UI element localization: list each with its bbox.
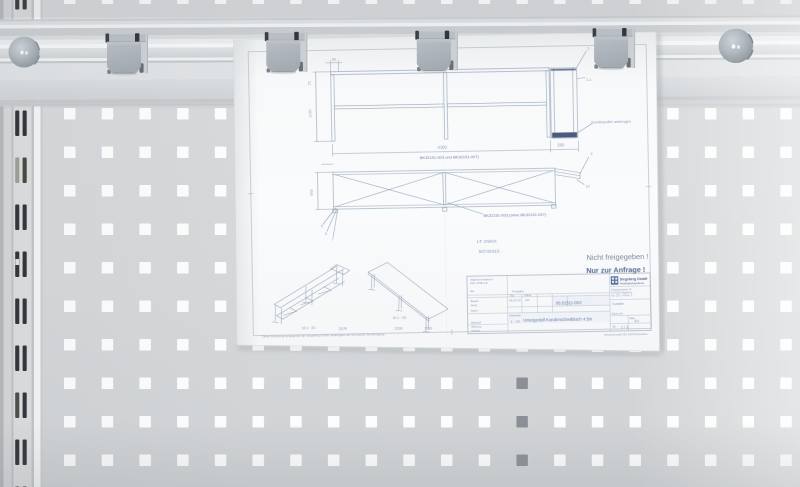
svg-text:1140: 1140 bbox=[308, 109, 312, 117]
svg-text:10: 10 bbox=[586, 184, 590, 188]
svg-text:1.: 1. bbox=[587, 46, 590, 50]
svg-text:ISO 2768-mK: ISO 2768-mK bbox=[470, 281, 488, 285]
svg-text:06.01511-003: 06.01511-003 bbox=[556, 300, 582, 305]
svg-text:50: 50 bbox=[332, 58, 336, 62]
svg-text:Kunden: Kunden bbox=[612, 302, 624, 306]
svg-text:Freigabe: Freigabe bbox=[512, 289, 524, 293]
svg-text:M 1 : 20: M 1 : 20 bbox=[393, 316, 406, 320]
svg-text:Norm: Norm bbox=[471, 309, 479, 313]
svg-text:840: 840 bbox=[310, 189, 314, 195]
svg-text:Ra: Ra bbox=[470, 289, 474, 293]
svg-text:75: 75 bbox=[308, 81, 312, 85]
svg-text:Tel. 0271 / 40 46 - 0: Tel. 0271 / 40 46 - 0 bbox=[611, 294, 633, 297]
svg-text:1 : 20: 1 : 20 bbox=[510, 319, 521, 324]
svg-text:5: 5 bbox=[321, 224, 323, 228]
svg-text:LT. KW04: LT. KW04 bbox=[477, 239, 497, 244]
svg-text:1298: 1298 bbox=[394, 326, 402, 330]
svg-text:Bearb.: Bearb. bbox=[470, 299, 479, 303]
svg-text:Gewicht: Gewicht bbox=[471, 330, 480, 333]
svg-text:Nur zur Anfrage !: Nur zur Anfrage ! bbox=[586, 265, 645, 275]
svg-text:4100: 4100 bbox=[437, 145, 447, 150]
svg-text:Siegsberg GmbH: Siegsberg GmbH bbox=[620, 277, 648, 282]
svg-text:Md: Md bbox=[525, 298, 530, 302]
svg-text:1299: 1299 bbox=[424, 326, 432, 330]
svg-text:1 / 3: 1 / 3 bbox=[621, 325, 628, 329]
svg-text:M 1 : 20: M 1 : 20 bbox=[302, 326, 315, 330]
svg-text:A3: A3 bbox=[634, 318, 640, 323]
svg-text:6: 6 bbox=[325, 232, 327, 236]
svg-text:Werkstoff: Werkstoff bbox=[471, 322, 481, 325]
svg-text:Bl.: Bl. bbox=[613, 325, 617, 329]
svg-text:08.03.15: 08.03.15 bbox=[509, 298, 521, 302]
svg-text:Nicht freigegeben !: Nicht freigegeben ! bbox=[586, 252, 648, 262]
svg-text:Sonderpuffer anbringen: Sonderpuffer anbringen bbox=[591, 120, 631, 125]
svg-text:Zg.Nr: Zg.Nr bbox=[339, 326, 348, 330]
svg-text:Gepr.: Gepr. bbox=[471, 303, 479, 307]
svg-text:5074041S: 5074041S bbox=[479, 249, 500, 254]
svg-text:1.1: 1.1 bbox=[586, 78, 591, 82]
svg-text:4: 4 bbox=[591, 152, 593, 156]
svg-text:7: 7 bbox=[332, 238, 334, 242]
svg-text:Halbzeug: Halbzeug bbox=[471, 325, 482, 328]
svg-text:500: 500 bbox=[557, 142, 565, 147]
